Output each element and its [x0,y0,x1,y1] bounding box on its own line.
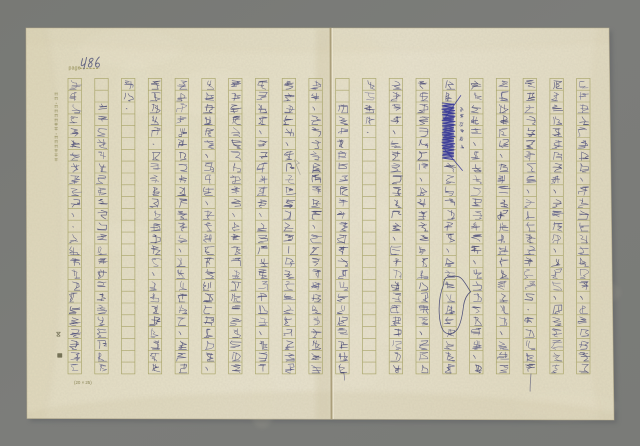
svg-text:(20 × 25): (20 × 25) [74,380,92,385]
svg-text:page: page [69,66,81,72]
